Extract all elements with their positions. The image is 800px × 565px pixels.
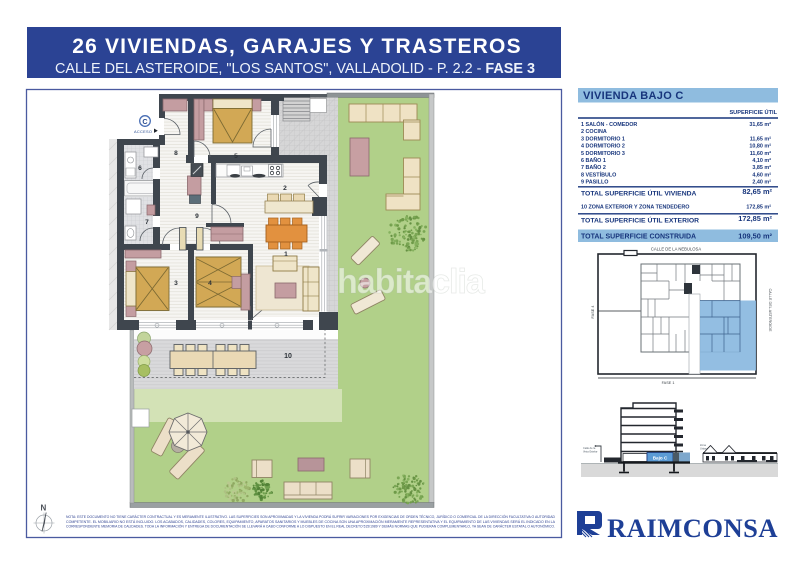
- svg-text:N: N: [41, 504, 47, 513]
- svg-text:RAIMCONSA: RAIMCONSA: [607, 513, 778, 543]
- svg-text:5 DORMITORIO 3: 5 DORMITORIO 3: [581, 151, 625, 157]
- svg-text:CORRESPONDIENTE MEMORIA DE CAL: CORRESPONDIENTE MEMORIA DE CALIDADES. TO…: [66, 524, 555, 529]
- svg-text:Bajo C: Bajo C: [653, 456, 668, 461]
- svg-text:7 BAÑO 2: 7 BAÑO 2: [581, 164, 606, 171]
- svg-text:9 PASILLO: 9 PASILLO: [581, 180, 608, 186]
- svg-text:FASE 4: FASE 4: [591, 306, 595, 319]
- svg-text:6: 6: [138, 165, 142, 172]
- svg-text:3 DORMITORIO 1: 3 DORMITORIO 1: [581, 136, 625, 142]
- svg-text:COMPETENTE. EL MOBILIARIO NO E: COMPETENTE. EL MOBILIARIO NO ESTÁ INCLUI…: [66, 519, 556, 524]
- svg-text:3: 3: [174, 280, 178, 287]
- svg-text:11,65 m²: 11,65 m²: [750, 136, 771, 142]
- svg-text:109,50 m²: 109,50 m²: [738, 232, 772, 241]
- svg-text:TOTAL SUPERFICIE ÚTIL EXTERIOR: TOTAL SUPERFICIE ÚTIL EXTERIOR: [581, 216, 699, 225]
- svg-text:10 ZONA EXTERIOR Y ZONA TENDE: 10 ZONA EXTERIOR Y ZONA TENDEDERO: [581, 205, 689, 211]
- svg-text:7: 7: [145, 219, 149, 226]
- svg-text:TOTAL SUPERFICIE ÚTIL VIVIENDA: TOTAL SUPERFICIE ÚTIL VIVIENDA: [581, 189, 697, 198]
- svg-text:4,10 m²: 4,10 m²: [752, 158, 771, 164]
- svg-text:4,60 m²: 4,60 m²: [752, 172, 771, 178]
- svg-text:2,40 m²: 2,40 m²: [752, 180, 771, 186]
- svg-text:8: 8: [174, 150, 178, 157]
- svg-text:172,85 m²: 172,85 m²: [746, 205, 771, 211]
- svg-text:26 VIVIENDAS, GARAJES Y TRASTE: 26 VIVIENDAS, GARAJES Y TRASTEROS: [72, 35, 522, 58]
- svg-text:6 BAÑO 1: 6 BAÑO 1: [581, 157, 606, 164]
- svg-text:82,65 m²: 82,65 m²: [742, 187, 772, 196]
- svg-text:ACCESO: ACCESO: [134, 129, 152, 134]
- svg-text:5: 5: [234, 153, 238, 160]
- svg-text:31,65 m²: 31,65 m²: [749, 122, 771, 128]
- svg-text:NOTA: ESTE DOCUMENTO NO TIENE: NOTA: ESTE DOCUMENTO NO TIENE CARÁCTER C…: [66, 514, 556, 519]
- svg-text:TOTAL SUPERFICIE CONSTRUIDA: TOTAL SUPERFICIE CONSTRUIDA: [581, 234, 696, 241]
- svg-text:FASE 1: FASE 1: [662, 381, 675, 385]
- svg-text:Vista Estelar: Vista Estelar: [583, 450, 598, 454]
- svg-text:2: 2: [283, 185, 287, 192]
- svg-text:CALLE DEL ASTEROIDE: CALLE DEL ASTEROIDE: [768, 288, 772, 332]
- svg-text:8 VESTÍBULO: 8 VESTÍBULO: [581, 170, 616, 178]
- svg-text:habitaclia: habitaclia: [337, 263, 486, 301]
- svg-text:Calle de la: Calle de la: [583, 446, 596, 450]
- svg-text:2 COCINA: 2 COCINA: [581, 129, 607, 135]
- svg-text:CALLE DEL ASTEROIDE, "LOS SANT: CALLE DEL ASTEROIDE, "LOS SANTOS", VALLA…: [55, 61, 535, 77]
- svg-text:9: 9: [195, 213, 199, 220]
- svg-text:C: C: [142, 117, 147, 126]
- svg-text:CALLE DE LA NEBULOSA: CALLE DE LA NEBULOSA: [651, 247, 701, 252]
- svg-text:Zona: Zona: [700, 443, 706, 447]
- svg-text:4 DORMITORIO 2: 4 DORMITORIO 2: [581, 144, 625, 150]
- svg-text:172,85 m²: 172,85 m²: [738, 214, 772, 223]
- svg-text:3,85 m²: 3,85 m²: [752, 165, 771, 171]
- svg-text:11,60 m²: 11,60 m²: [750, 151, 771, 157]
- svg-text:1 SALÓN - COMEDOR: 1 SALÓN - COMEDOR: [581, 120, 637, 128]
- svg-text:1: 1: [284, 251, 288, 258]
- svg-text:10,80 m²: 10,80 m²: [749, 144, 771, 150]
- svg-text:SUPERFICIE ÚTIL: SUPERFICIE ÚTIL: [729, 109, 777, 116]
- svg-text:VIVIENDA BAJO C: VIVIENDA BAJO C: [583, 90, 684, 102]
- svg-text:10: 10: [284, 353, 292, 360]
- svg-text:4: 4: [208, 280, 212, 287]
